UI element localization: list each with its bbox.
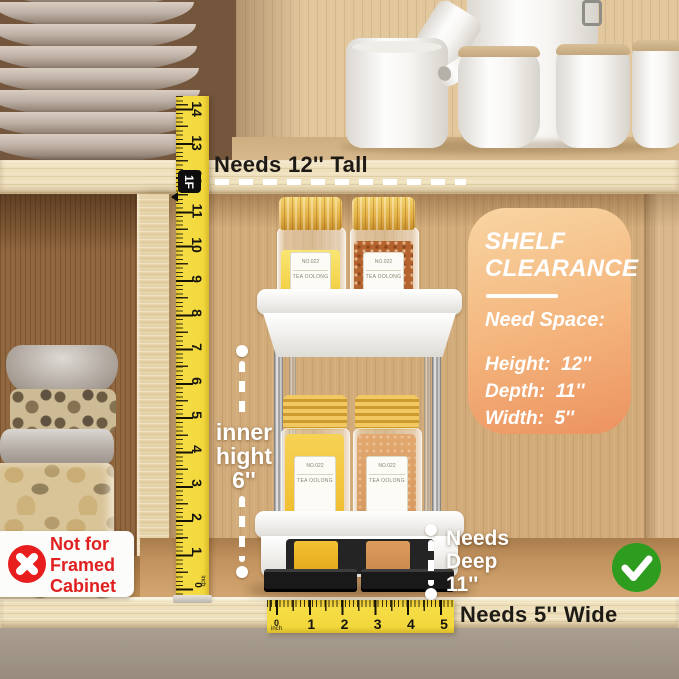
not-for-line1: Not for bbox=[50, 534, 116, 555]
horizontal-ruler-unit: inch bbox=[271, 626, 282, 632]
inner-height-dot-top bbox=[236, 345, 248, 357]
needs-deep-line2: Deep bbox=[446, 550, 518, 573]
spice-jar-top-right-cap bbox=[352, 197, 415, 230]
spice-label-number: NO.022 bbox=[302, 259, 319, 265]
horizontal-ruler-numbers: 0 inch 1 2 3 4 5 bbox=[271, 609, 448, 632]
foot-marker: 1F bbox=[178, 170, 201, 193]
needs-deep-line3: 11'' bbox=[446, 573, 518, 596]
card-subtitle: Need Space: bbox=[485, 309, 631, 332]
ruler-number: 7 bbox=[191, 343, 203, 351]
spice-label-name: TEA OOLONG bbox=[293, 270, 329, 280]
shelf-clearance-card: SHELF CLEARANCE Need Space: Height: 12''… bbox=[468, 208, 631, 434]
nut-jar-top-glass bbox=[10, 389, 116, 433]
needs-wide-text: Needs 5'' Wide bbox=[460, 602, 618, 628]
ruler-number: 1 bbox=[307, 616, 315, 632]
spec-height: Height: 12'' bbox=[485, 351, 631, 378]
vertical-ruler-end-cap bbox=[173, 595, 212, 603]
canister-medium-lid bbox=[556, 44, 630, 55]
needs-deep-dot-bottom bbox=[425, 588, 437, 600]
tier1-basket-body bbox=[263, 313, 456, 357]
canister-right-lid bbox=[632, 40, 679, 51]
ruler-number: 13 bbox=[191, 135, 203, 151]
white-mug-rim bbox=[352, 41, 442, 53]
spice-label-name: TEA OOLONG bbox=[369, 474, 405, 484]
ruler-number: 11 bbox=[191, 204, 203, 219]
spec-width: Width: 5'' bbox=[485, 405, 631, 432]
inner-height-dot-bottom bbox=[236, 566, 248, 578]
foot-marker-text: 1F bbox=[182, 174, 196, 188]
spice-label-number: NO.022 bbox=[378, 463, 395, 469]
foot-marker-arrow bbox=[171, 192, 178, 202]
rack-pole-back-right bbox=[424, 352, 431, 517]
vertical-ruler: 14 13 12 11 10 9 8 7 6 5 4 3 2 1 0 inch … bbox=[176, 96, 209, 598]
canister-right bbox=[632, 40, 679, 148]
slide-rail-left bbox=[264, 569, 357, 592]
canister-clamp bbox=[582, 0, 602, 26]
ruler-number: 4 bbox=[407, 616, 415, 632]
spec-depth: Depth: 11'' bbox=[485, 378, 631, 405]
needs-tall-dashed-line bbox=[215, 179, 466, 185]
ruler-number: 9 bbox=[191, 275, 203, 283]
teapot bbox=[458, 46, 540, 148]
spice-jar-top-left-cap bbox=[279, 197, 342, 230]
inner-height-line2: hight bbox=[202, 444, 286, 468]
card-title-line2: CLEARANCE bbox=[485, 255, 631, 282]
plate bbox=[0, 134, 203, 162]
ruler-zero-group: 0 inch bbox=[271, 620, 282, 632]
spice-label-name: TEA OOLONG bbox=[297, 474, 333, 484]
red-cross-icon bbox=[8, 545, 46, 583]
inner-height-dash-bottom bbox=[239, 496, 245, 562]
card-divider bbox=[486, 294, 558, 298]
left-compartment-shadow bbox=[0, 194, 140, 254]
tier2-window-right bbox=[366, 541, 410, 572]
needs-tall-text: Needs 12'' Tall bbox=[214, 152, 368, 178]
spice-label-number: NO.022 bbox=[375, 259, 392, 265]
needs-deep-dot-top bbox=[425, 524, 437, 536]
ruler-number: 6 bbox=[191, 377, 203, 385]
needs-deep-text: Needs Deep 11'' bbox=[446, 527, 518, 596]
card-specs: Height: 12'' Depth: 11'' Width: 5'' bbox=[485, 351, 631, 432]
inner-height-line1: inner bbox=[202, 420, 286, 444]
vertical-ruler-unit: inch bbox=[199, 575, 205, 586]
ruler-number: 5 bbox=[440, 616, 448, 632]
tier1-basket-rim bbox=[257, 289, 462, 315]
horizontal-ruler: 0 inch 1 2 3 4 5 bbox=[267, 600, 454, 633]
rack-pole-front-right bbox=[432, 348, 441, 520]
spice-jar-bottom-left-cap bbox=[283, 395, 347, 430]
nut-jar-bottom-lid bbox=[0, 429, 114, 465]
nut-jar-top-lid bbox=[6, 345, 118, 393]
ruler-number: 14 bbox=[191, 101, 203, 117]
not-for-line2: Framed bbox=[50, 555, 116, 576]
ruler-number: 2 bbox=[341, 616, 349, 632]
ruler-number: 10 bbox=[191, 237, 203, 253]
tier2-window-left bbox=[294, 541, 338, 572]
needs-deep-dash bbox=[428, 540, 434, 586]
spice-label-name: TEA OOLONG bbox=[366, 270, 402, 280]
not-for-line3: Cabinet bbox=[50, 576, 116, 597]
ruler-number: 2 bbox=[191, 513, 203, 521]
needs-deep-line1: Needs bbox=[446, 527, 518, 550]
teapot-lid bbox=[458, 46, 540, 57]
canister-medium bbox=[556, 44, 630, 148]
not-for-framed-text: Not for Framed Cabinet bbox=[50, 534, 116, 597]
spice-jar-bottom-right-cap bbox=[355, 395, 419, 430]
slide-rail-right bbox=[361, 569, 454, 592]
not-for-framed-label: Not for Framed Cabinet bbox=[0, 531, 134, 597]
green-check-icon bbox=[612, 543, 661, 592]
ruler-number: 8 bbox=[191, 309, 203, 317]
ruler-number: 5 bbox=[191, 411, 203, 419]
inner-height-text: inner hight 6'' bbox=[202, 420, 286, 492]
inner-height-line3: 6'' bbox=[202, 468, 286, 492]
white-mug bbox=[346, 38, 448, 148]
ruler-number: 3 bbox=[374, 616, 382, 632]
inner-height-dash-top bbox=[239, 361, 245, 419]
card-title-line1: SHELF bbox=[485, 228, 631, 255]
product-scene: NO.022 TEA OOLONG NO.022 TEA OOLONG NO.0… bbox=[0, 0, 679, 679]
ruler-number: 1 bbox=[191, 547, 203, 555]
spice-label-number: NO.022 bbox=[306, 463, 323, 469]
